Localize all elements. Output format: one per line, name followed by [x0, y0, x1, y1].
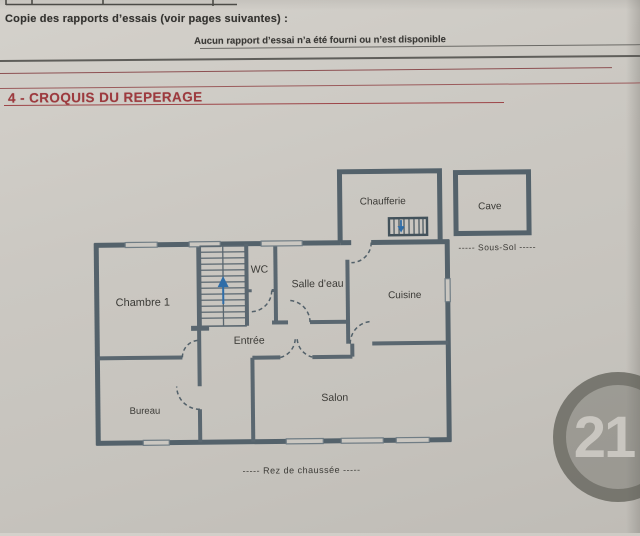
- room-label-entree: Entrée: [234, 335, 265, 347]
- room-label-wc: WC: [251, 264, 269, 276]
- room-label-chaufferie: Chaufferie: [360, 196, 407, 207]
- room-label-chambre1: Chambre 1: [116, 297, 171, 310]
- scanned-report-page: { "document": { "intro_line": "Copie des…: [0, 0, 640, 533]
- room-label-cave: Cave: [478, 201, 502, 212]
- floorplan-drawing: Chaufferie Cave Chambre 1 WC Salle d’eau…: [0, 0, 640, 536]
- level-label-sous-sol: ----- Sous-Sol -----: [458, 242, 536, 253]
- room-label-bureau: Bureau: [130, 406, 161, 417]
- room-label-cuisine: Cuisine: [388, 290, 422, 301]
- room-label-salle-deau: Salle d’eau: [292, 278, 344, 291]
- level-label-rez-de-chaussee: ----- Rez de chaussée -----: [243, 465, 361, 476]
- staircase-main: [200, 246, 246, 326]
- staircase-basement: [389, 218, 427, 235]
- room-label-salon: Salon: [321, 392, 348, 404]
